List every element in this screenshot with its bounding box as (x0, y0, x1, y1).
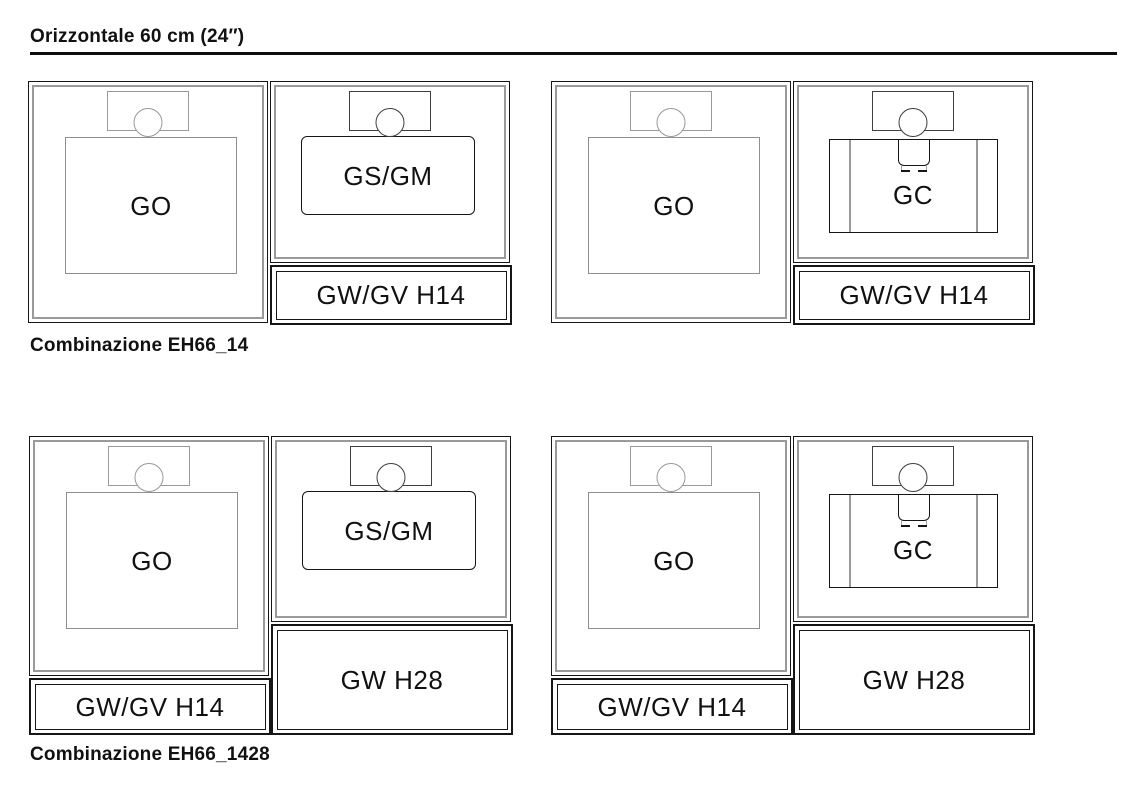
steam-oven-knob-icon (376, 108, 405, 137)
warming-drawer-label: GW/GV H14 (76, 694, 225, 720)
catalog-page: Orizzontale 60 cm (24″) GO GS/GM GW/GV H… (0, 0, 1121, 791)
oven-cavity: GO (588, 137, 760, 274)
steam-oven-front: GS/GM (302, 491, 476, 570)
warming-drawer: GW/GV H14 (29, 678, 271, 735)
coffee-machine-label: GC (893, 535, 933, 565)
coffee-drip-tray-icon (901, 521, 927, 527)
combo-diagram-eh66-1428-b: GO GW/GV H14 GC GW H28 (551, 436, 1031, 731)
warming-drawer-front: GW/GV H14 (557, 684, 788, 730)
oven-knob-icon (657, 108, 686, 137)
warming-drawer-front: GW H28 (799, 630, 1030, 730)
warming-drawer-label: GW/GV H14 (317, 282, 466, 308)
oven-unit: GO (29, 436, 269, 676)
warming-drawer-front: GW/GV H14 (276, 271, 507, 320)
coffee-machine-label-row: GC (794, 537, 1032, 564)
oven-knob-icon (134, 108, 163, 137)
steam-oven-label: GS/GM (343, 163, 432, 189)
coffee-machine-unit: GC (793, 436, 1033, 622)
coffee-spout-icon (898, 495, 930, 521)
warming-drawer: GW/GV H14 (270, 265, 512, 325)
oven-label: GO (131, 548, 172, 574)
oven-label: GO (130, 193, 171, 219)
warming-drawer-front: GW H28 (277, 630, 508, 730)
oven-knob-icon (135, 463, 164, 492)
oven-unit: GO (28, 81, 268, 323)
warming-drawer-label: GW H28 (341, 667, 444, 693)
coffee-machine-label: GC (893, 180, 933, 210)
combo-diagram-eh66-14-a: GO GS/GM GW/GV H14 (28, 81, 508, 321)
steam-oven-unit: GS/GM (270, 81, 510, 263)
oven-unit: GO (551, 436, 791, 676)
oven-label: GO (653, 548, 694, 574)
combo-caption-eh66-14: Combinazione EH66_14 (30, 335, 248, 357)
oven-cavity: GO (65, 137, 237, 274)
warming-drawer-front: GW/GV H14 (35, 684, 266, 730)
combo-diagram-eh66-14-b: GO GC GW/GV H14 (551, 81, 1031, 321)
oven-cavity: GO (588, 492, 760, 629)
oven-label: GO (653, 193, 694, 219)
coffee-machine-label-row: GC (794, 182, 1032, 209)
warming-drawer-label: GW/GV H14 (598, 694, 747, 720)
combo-diagram-eh66-1428-a: GO GW/GV H14 GS/GM GW H28 (29, 436, 509, 731)
warming-drawer: GW/GV H14 (551, 678, 793, 735)
coffee-drip-tray-icon (901, 166, 927, 172)
coffee-spout-icon (898, 140, 930, 166)
warming-drawer-label: GW/GV H14 (840, 282, 989, 308)
coffee-machine-knob-icon (899, 463, 928, 492)
steam-oven-front: GS/GM (301, 136, 475, 215)
page-title: Orizzontale 60 cm (24″) (30, 26, 244, 48)
warming-drawer-label: GW H28 (863, 667, 966, 693)
steam-oven-knob-icon (377, 463, 406, 492)
oven-cavity: GO (66, 492, 238, 629)
combo-caption-eh66-1428: Combinazione EH66_1428 (30, 744, 270, 766)
oven-unit: GO (551, 81, 791, 323)
coffee-machine-knob-icon (899, 108, 928, 137)
title-rule (30, 52, 1117, 55)
steam-oven-label: GS/GM (344, 518, 433, 544)
oven-knob-icon (657, 463, 686, 492)
steam-oven-unit: GS/GM (271, 436, 511, 622)
warming-drawer-tall: GW H28 (793, 624, 1035, 735)
coffee-machine-unit: GC (793, 81, 1033, 263)
warming-drawer: GW/GV H14 (793, 265, 1035, 325)
warming-drawer-front: GW/GV H14 (799, 271, 1030, 320)
warming-drawer-tall: GW H28 (271, 624, 513, 735)
